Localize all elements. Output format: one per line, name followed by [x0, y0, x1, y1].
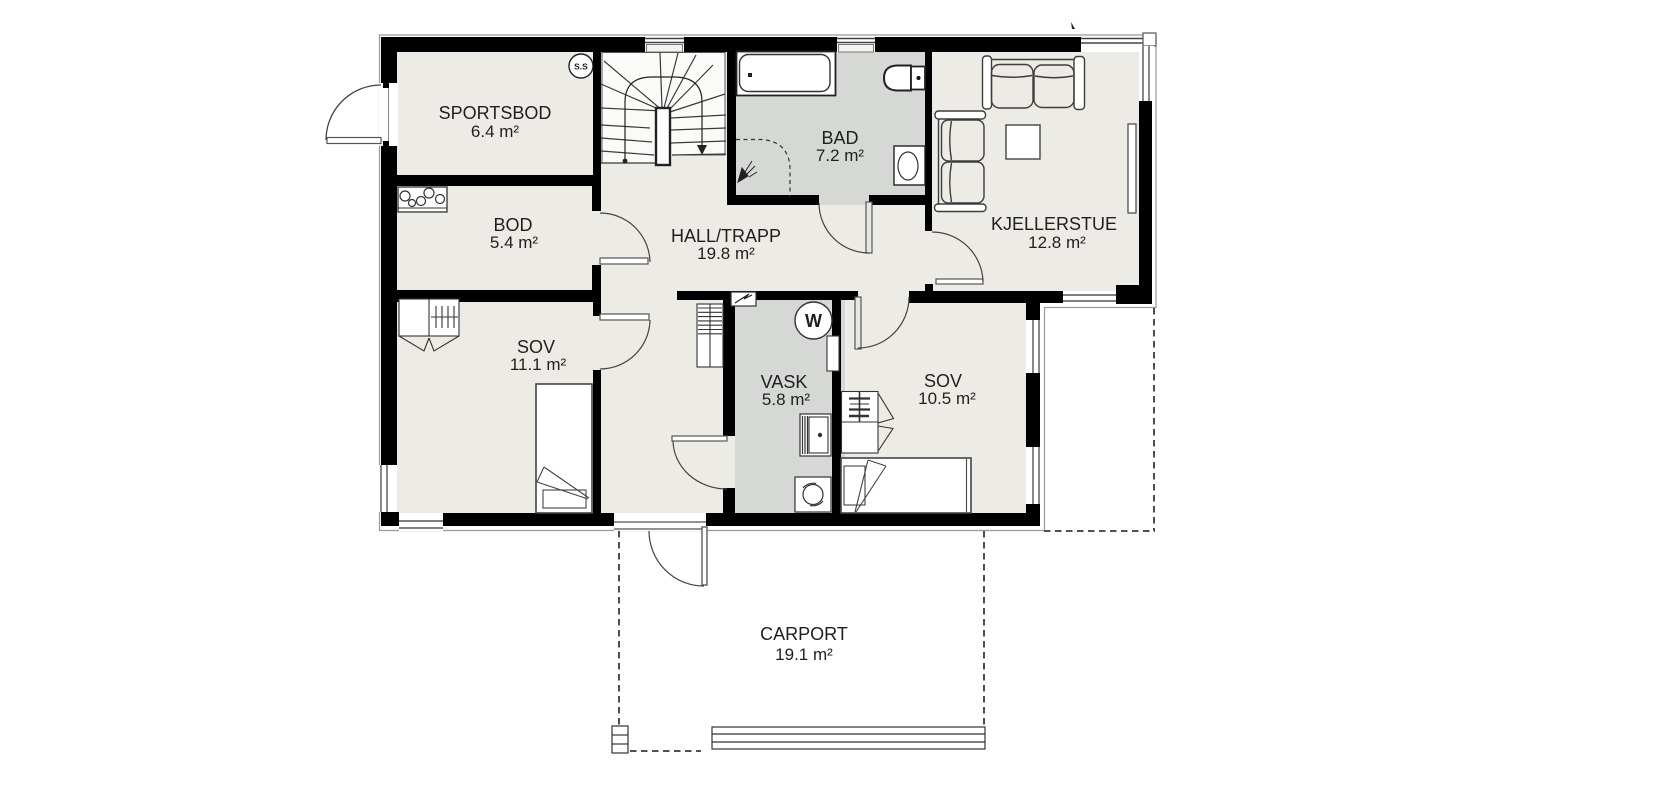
svg-text:7.2 m²: 7.2 m²	[816, 146, 865, 165]
svg-text:SPORTSBOD: SPORTSBOD	[439, 103, 552, 123]
svg-text:SOV: SOV	[517, 337, 555, 357]
svg-text:HALL/TRAPP: HALL/TRAPP	[671, 226, 781, 246]
svg-text:SOV: SOV	[924, 371, 962, 391]
svg-text:11.1 m²: 11.1 m²	[510, 355, 567, 374]
svg-text:BAD: BAD	[821, 128, 858, 148]
svg-text:KJELLERSTUE: KJELLERSTUE	[991, 214, 1117, 234]
svg-text:10.5 m²: 10.5 m²	[918, 389, 976, 408]
svg-text:W: W	[805, 311, 822, 331]
svg-text:CARPORT: CARPORT	[760, 624, 848, 644]
svg-text:19.8 m²: 19.8 m²	[697, 244, 755, 263]
svg-text:S.S: S.S	[574, 62, 588, 72]
svg-text:5.8 m²: 5.8 m²	[762, 390, 811, 409]
svg-text:12.8 m²: 12.8 m²	[1028, 233, 1086, 252]
svg-text:19.1 m²: 19.1 m²	[775, 645, 833, 664]
svg-text:VASK: VASK	[761, 372, 808, 392]
svg-text:6.4 m²: 6.4 m²	[471, 122, 520, 141]
svg-text:5.4 m²: 5.4 m²	[490, 233, 539, 252]
svg-text:BOD: BOD	[493, 215, 532, 235]
